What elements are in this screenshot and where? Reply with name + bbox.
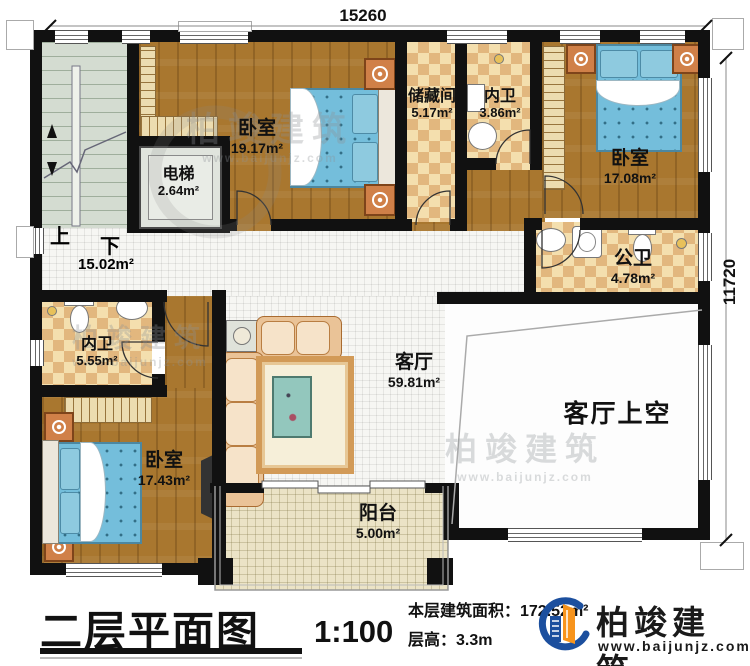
room-name: 储藏间: [408, 88, 456, 106]
stair-arrow-up: [47, 124, 57, 138]
room-name: 公卫: [614, 248, 652, 270]
brand-name: 柏竣建筑: [596, 596, 744, 666]
stair-break-line: [44, 132, 126, 178]
brand-logo: 柏竣建筑 www.baijunjz.com: [534, 596, 744, 660]
floor-height-line: 层高：3.3m: [408, 628, 492, 653]
room-label-bath-top: 内卫 3.86m²: [468, 88, 532, 121]
room-area: 5.17m²: [411, 106, 452, 121]
room-area: 4.78m²: [611, 270, 655, 286]
stairs-up-label: 上: [50, 220, 70, 249]
stair-handrail: [72, 66, 80, 226]
room-label-bedroom-top: 卧室 19.17m²: [197, 118, 317, 156]
room-name: 卧室: [145, 450, 183, 472]
floor-plan-page: 柏竣建筑 www.baijunjz.com 柏竣建筑 www.baijunjz.…: [0, 0, 750, 666]
room-name: 内卫: [81, 336, 113, 354]
title-underline: [40, 648, 302, 654]
room-area: 2.64m²: [158, 184, 199, 199]
room-label-balcony: 阳台 5.00m²: [318, 503, 438, 541]
room-area: 19.17m²: [231, 140, 283, 156]
brand-logo-icon: [534, 596, 592, 658]
room-name: 阳台: [359, 503, 397, 525]
dimension-right: 11720: [720, 244, 740, 320]
stairs-area-label: 15.02m²: [78, 256, 134, 273]
dimension-top: 15260: [328, 6, 398, 26]
room-label-bath-public: 公卫 4.78m²: [573, 248, 693, 286]
room-area: 59.81m²: [388, 374, 440, 390]
room-name: 卧室: [611, 148, 649, 170]
room-label-living: 客厅 59.81m²: [354, 352, 474, 390]
room-label-bedroom-right: 卧室 17.08m²: [570, 148, 690, 186]
room-label-elevator: 电梯 2.64m²: [139, 166, 218, 199]
room-area: 3.86m²: [479, 106, 520, 121]
drawing-scale: 1:100: [314, 614, 393, 650]
room-label-living-void: 客厅上空: [525, 400, 710, 429]
room-label-bedroom-bottom: 卧室 17.43m²: [104, 450, 224, 488]
room-name: 客厅: [395, 352, 433, 374]
room-name: 客厅上空: [563, 400, 671, 429]
brand-website: www.baijunjz.com: [598, 638, 750, 654]
room-label-storage: 储藏间 5.17m²: [396, 88, 468, 121]
plan-linework: [0, 0, 750, 666]
stair-arrow-down: [47, 162, 57, 176]
room-name: 电梯: [162, 166, 194, 184]
sliding-door: [262, 481, 425, 493]
stairs-down-label: 下: [100, 230, 120, 259]
title-underline-thin: [40, 657, 302, 659]
room-area: 5.00m²: [356, 525, 400, 541]
room-name: 内卫: [484, 88, 516, 106]
room-area: 17.43m²: [138, 472, 190, 488]
room-name: 卧室: [238, 118, 276, 140]
room-area: 5.55m²: [76, 354, 117, 369]
room-area: 17.08m²: [604, 170, 656, 186]
room-label-bath-left: 内卫 5.55m²: [57, 336, 137, 369]
